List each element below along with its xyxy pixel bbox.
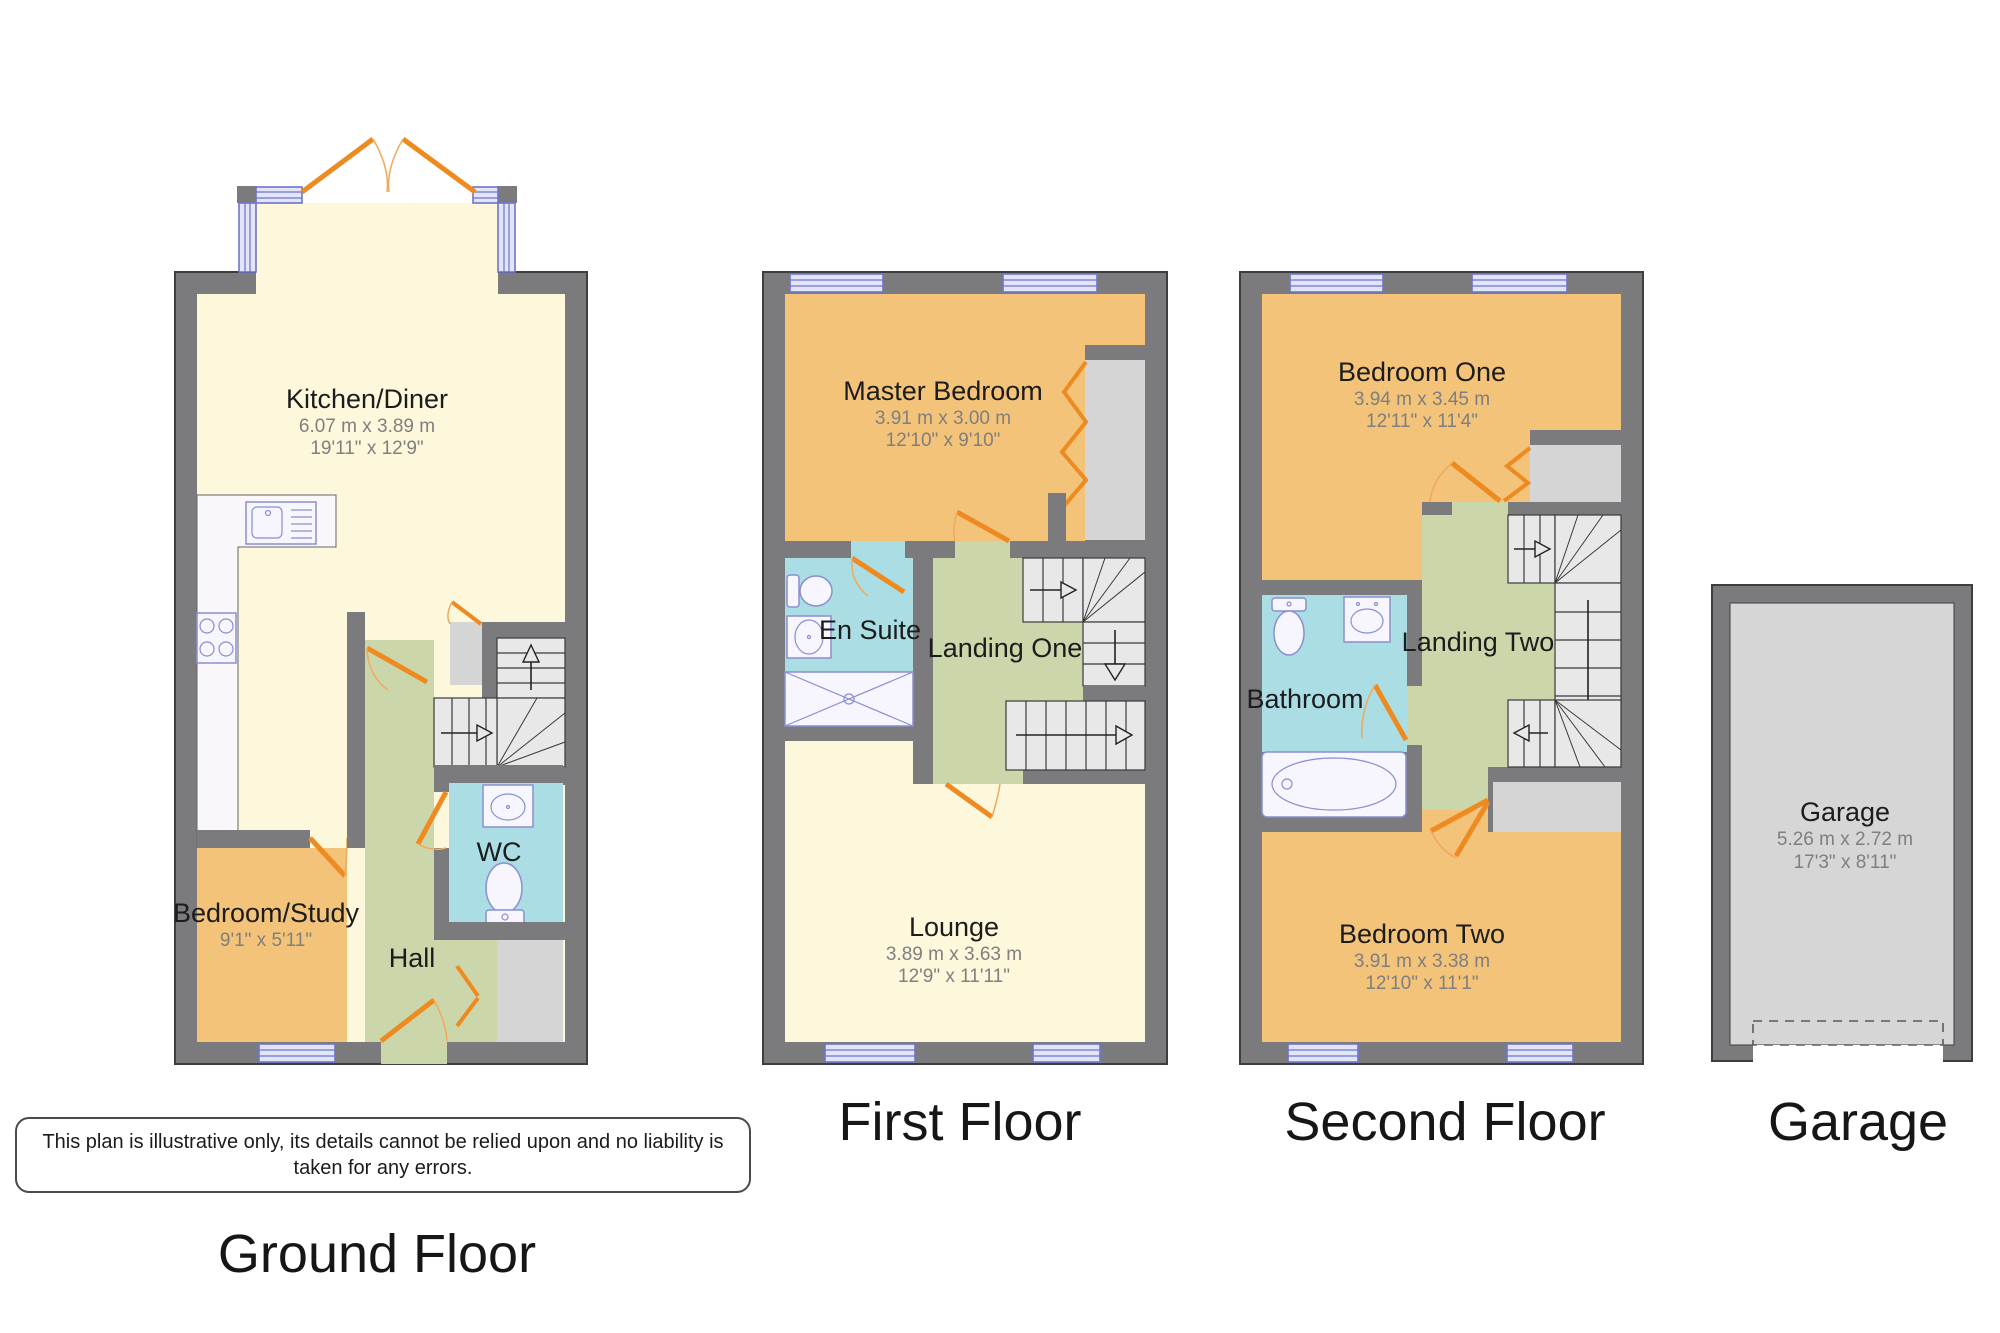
kitchen-hall-wall: [347, 612, 365, 848]
bedroom-one-dims-imperial: 12'11" x 11'4": [1366, 411, 1478, 432]
bedroom-one-door-opening: [1452, 502, 1508, 515]
ensuite-door-opening: [851, 541, 905, 558]
floorplan-canvas: Kitchen/Diner 6.07 m x 3.89 m 19'11" x 1…: [0, 0, 2000, 1333]
front-door-opening: [381, 1042, 447, 1064]
master-wall-stub: [1048, 493, 1066, 541]
bedroom-one-closet: [1530, 445, 1621, 502]
landing-two-label: Landing Two: [1402, 627, 1555, 657]
ground-storage-floor: [497, 940, 563, 1042]
ensuite-shower: [785, 672, 913, 726]
bedroom-two-label: Bedroom Two: [1339, 919, 1505, 949]
master-bedroom-label: Master Bedroom: [843, 376, 1043, 406]
lounge-dims-metric: 3.89 m x 3.63 m: [886, 944, 1022, 965]
kitchen-stove: [197, 613, 236, 663]
bathroom-door-opening: [1407, 686, 1422, 745]
master-closet: [1085, 360, 1145, 540]
bedroom-two-dims-imperial: 12'10" x 11'1": [1365, 973, 1478, 994]
stair-wall: [482, 622, 497, 698]
bedroom-one-dims-metric: 3.94 m x 3.45 m: [1354, 389, 1490, 410]
second-window-bottom-left: [1288, 1044, 1358, 1062]
garage-dims-metric: 5.26 m x 2.72 m: [1777, 829, 1913, 850]
bay-window-top-left: [256, 187, 302, 203]
ground-floor-title: Ground Floor: [218, 1224, 536, 1284]
french-doors: [302, 139, 475, 192]
hall-floor-lower: [434, 940, 497, 1042]
first-window-top-right: [1003, 274, 1097, 292]
stair-wall-top: [497, 622, 565, 638]
disclaimer-box: This plan is illustrative only, its deta…: [15, 1117, 751, 1193]
bedroom-study-wall: [197, 830, 310, 848]
first-floor-title: First Floor: [839, 1092, 1082, 1152]
landing-one-label: Landing One: [928, 633, 1083, 663]
master-door-opening: [955, 541, 1010, 558]
kitchen-diner-label: Kitchen/Diner: [286, 384, 448, 414]
first-window-bottom-right: [1033, 1044, 1100, 1062]
bedroom-study-dims-imperial: 9'1" x 5'11": [220, 930, 312, 951]
hall-floor: [365, 640, 434, 1042]
bedroom-study-label: Bedroom/Study: [173, 898, 360, 928]
second-window-top-left: [1290, 274, 1383, 292]
wc-wall-bottom: [434, 922, 578, 940]
bedroom-one-label: Bedroom One: [1338, 357, 1506, 387]
under-stairs-cupboard: [450, 622, 482, 685]
first-window-top-left: [790, 274, 883, 292]
hall-label: Hall: [389, 943, 436, 973]
wc-toilet: [486, 863, 524, 924]
bathroom-label: Bathroom: [1246, 684, 1363, 714]
bathroom-sink: [1344, 597, 1390, 642]
bay-floor: [256, 203, 498, 296]
bay-window-side-left: [239, 203, 256, 272]
disclaimer-text: This plan is illustrative only, its deta…: [35, 1129, 731, 1181]
second-window-bottom-right: [1507, 1044, 1573, 1062]
lounge-floor: [785, 741, 1145, 1042]
kitchen-diner-dims-imperial: 19'11" x 12'9": [310, 438, 423, 459]
second-floor-title: Second Floor: [1284, 1092, 1605, 1152]
kitchen-diner-dims-metric: 6.07 m x 3.89 m: [299, 416, 435, 437]
garage-label: Garage: [1800, 797, 1890, 827]
lounge-label: Lounge: [909, 912, 999, 942]
lounge-dims-imperial: 12'9" x 11'11": [898, 966, 1010, 987]
bay-post-left: [237, 186, 257, 203]
wc-wall-top: [434, 765, 563, 783]
bedroom-two-dims-metric: 3.91 m x 3.38 m: [1354, 951, 1490, 972]
first-window-bottom-left: [825, 1044, 915, 1062]
bathroom-bath: [1262, 752, 1406, 817]
kitchen-sink: [246, 502, 316, 544]
master-bedroom-dims-imperial: 12'10" x 9'10": [886, 430, 1001, 451]
garage-dims-imperial: 17'3" x 8'11": [1794, 852, 1897, 873]
garage-door-opening: [1753, 1045, 1943, 1062]
bathroom-toilet: [1272, 598, 1306, 655]
en-suite-label: En Suite: [819, 615, 921, 645]
landing-lounge-opening: [945, 770, 1000, 784]
garage-title: Garage: [1768, 1092, 1948, 1152]
second-window-top-right: [1472, 274, 1567, 292]
ground-window-bottom: [259, 1044, 335, 1062]
wc-wall-left-b: [434, 848, 449, 922]
wc-sink: [483, 785, 533, 827]
bay-post-right: [497, 186, 517, 203]
ensuite-toilet: [787, 575, 832, 607]
bay-window-top-right: [473, 187, 498, 203]
master-bedroom-dims-metric: 3.91 m x 3.00 m: [875, 408, 1011, 429]
wc-wall-left-a: [434, 783, 449, 792]
wc-label: WC: [477, 837, 522, 867]
bay-window-side-right: [498, 203, 515, 272]
